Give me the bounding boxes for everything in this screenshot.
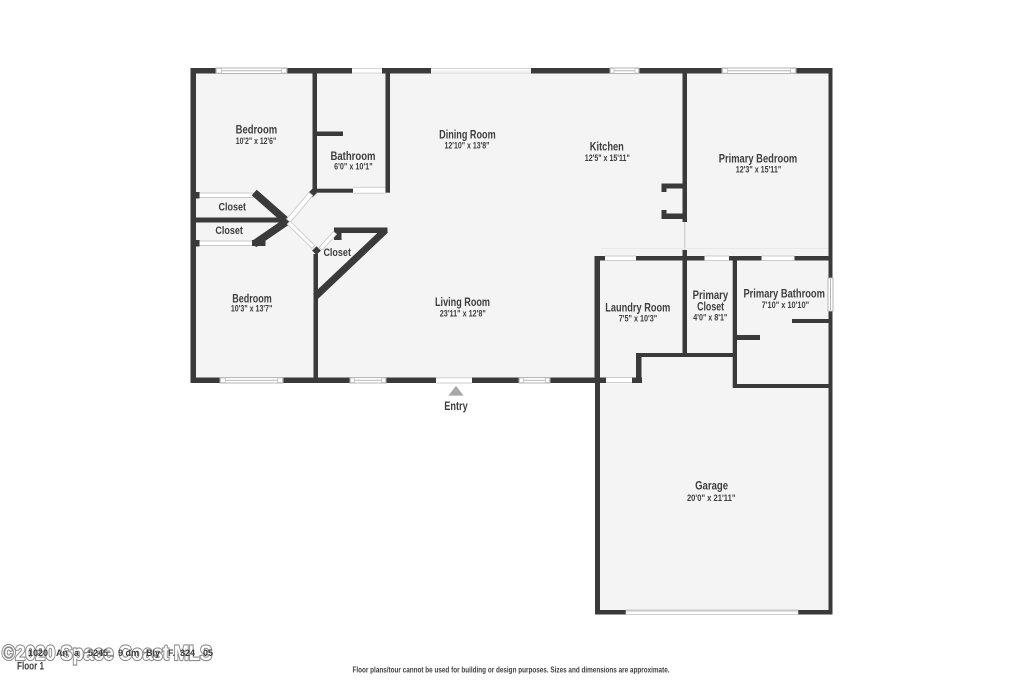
svg-text:7'5" x 10'3": 7'5" x 10'3" bbox=[619, 314, 658, 324]
svg-text:Primary: Primary bbox=[693, 290, 729, 302]
svg-text:Entry: Entry bbox=[444, 401, 468, 413]
svg-text:Garage: Garage bbox=[695, 481, 728, 493]
svg-text:Closet: Closet bbox=[323, 247, 351, 259]
svg-text:Primary Bathroom: Primary Bathroom bbox=[743, 289, 825, 301]
svg-text:10'2" x 12'6": 10'2" x 12'6" bbox=[236, 136, 277, 146]
svg-text:Closet: Closet bbox=[219, 202, 247, 214]
svg-text:23'11" x 12'8": 23'11" x 12'8" bbox=[440, 309, 486, 319]
svg-text:4'0" x 8'1": 4'0" x 8'1" bbox=[693, 313, 727, 323]
svg-text:10'3" x 13'7": 10'3" x 13'7" bbox=[231, 304, 273, 314]
svg-text:Floor 1: Floor 1 bbox=[17, 661, 44, 673]
svg-text:7'10" x 10'10": 7'10" x 10'10" bbox=[762, 300, 810, 310]
svg-text:12'5" x 15'11": 12'5" x 15'11" bbox=[585, 153, 630, 163]
svg-text:12'3" x 15'11": 12'3" x 15'11" bbox=[736, 165, 782, 175]
svg-text:1020Ana52459 dmBlyF.32405: 1020Ana52459 dmBlyF.32405 bbox=[28, 648, 213, 658]
svg-text:6'0" x 10'1": 6'0" x 10'1" bbox=[334, 162, 373, 172]
svg-text:Floor plans/tour cannot be use: Floor plans/tour cannot be used for buil… bbox=[353, 665, 670, 675]
svg-text:Living Room: Living Room bbox=[435, 297, 490, 309]
svg-text:Closet: Closet bbox=[215, 225, 243, 237]
svg-text:Kitchen: Kitchen bbox=[590, 142, 624, 154]
svg-text:12'10" x 13'8": 12'10" x 13'8" bbox=[445, 141, 490, 151]
svg-text:Bedroom: Bedroom bbox=[236, 125, 278, 137]
svg-text:20'0" x 21'11": 20'0" x 21'11" bbox=[687, 493, 736, 503]
